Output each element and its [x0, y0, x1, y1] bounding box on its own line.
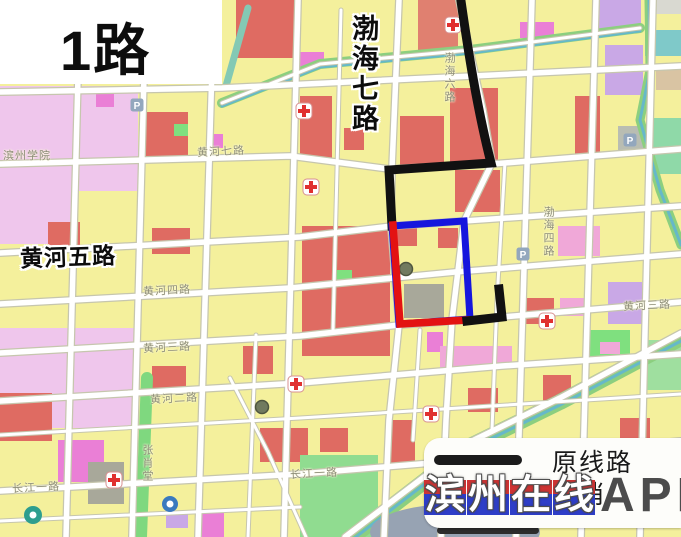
- hospital-icon: [539, 313, 555, 329]
- watermark-brand-char: 滨: [424, 470, 466, 522]
- map-label-huanghe3-left: 黄河三路: [143, 338, 192, 356]
- hospital-icon: [296, 103, 312, 119]
- hospital-icon: [106, 472, 122, 488]
- legend-line-partial: [437, 527, 539, 534]
- map-label-changjiang1-mid: 长江一路: [290, 464, 339, 482]
- map-label-bohai6: 渤海六路: [441, 52, 457, 104]
- hospital-icon: [445, 17, 461, 33]
- watermark-brand-char: 州: [467, 470, 509, 522]
- tree-icon: [400, 263, 413, 276]
- screenshot-root: { "page": { "title": "1路" }, "map": { "b…: [0, 0, 681, 537]
- hospital-icon: [303, 179, 319, 195]
- map-label-huanghe3-right: 黄河三路: [623, 296, 672, 314]
- watermark: 滨 州 在 线 APP: [424, 470, 681, 522]
- map-label-bohai4: 渤海四路: [540, 206, 556, 258]
- watermark-app-suffix: APP: [600, 470, 681, 522]
- map-label-binzhou-college: 滨州学院: [3, 147, 51, 163]
- map-label-changjiang1-left: 长江一路: [12, 478, 61, 496]
- route-title-box: 1路: [0, 0, 222, 84]
- route-title: 1路: [60, 6, 151, 87]
- road-label-huanghe-5-lu: 黄河五路: [19, 236, 116, 273]
- legend-line-original-route: [434, 455, 522, 465]
- parking-icon: [624, 134, 637, 148]
- parking-icon: [517, 248, 530, 262]
- parking-icon: [131, 99, 144, 113]
- hospital-icon: [288, 376, 304, 392]
- map-label-huanghe2: 黄河二路: [150, 389, 199, 407]
- map-label-zhangxiaotang: 张肖堂: [139, 444, 155, 483]
- watermark-brand-char: 在: [510, 470, 552, 522]
- road-label-bohai-7-lu: 渤海七路: [349, 14, 376, 134]
- watermark-brand-char: 线: [553, 470, 595, 522]
- tree-icon: [256, 401, 269, 414]
- map-label-huanghe4: 黄河四路: [143, 281, 192, 299]
- map-label-huanghe7: 黄河七路: [197, 142, 246, 160]
- hospital-icon: [423, 406, 439, 422]
